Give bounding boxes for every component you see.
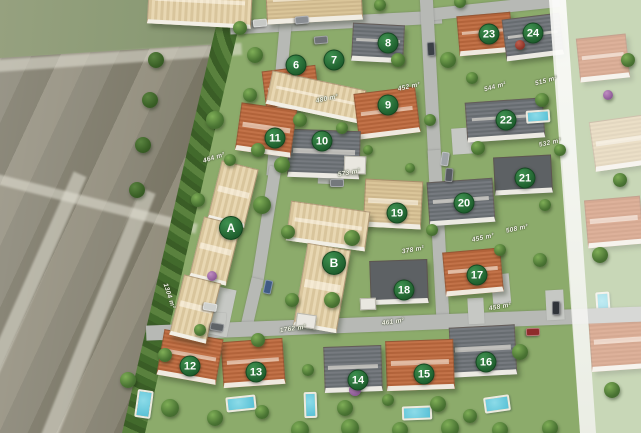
tree [251, 143, 265, 157]
tree [161, 399, 179, 417]
lot-marker[interactable]: 8 [378, 33, 399, 54]
tree [336, 122, 348, 134]
tree [281, 225, 295, 239]
car [444, 168, 453, 183]
lot-marker[interactable]: 21 [515, 168, 536, 189]
tree [592, 247, 608, 263]
lot-marker[interactable]: 6 [286, 55, 307, 76]
lot-area-label: 544 m² [483, 81, 506, 94]
pool-lot-12 [134, 389, 154, 419]
lot-area-label: 515 m² [534, 75, 557, 88]
tree [255, 405, 269, 419]
tree [374, 0, 386, 11]
lot-marker-label: 24 [527, 27, 539, 39]
tree [405, 163, 415, 173]
tree [512, 344, 528, 360]
lot-marker-label: 11 [269, 132, 281, 144]
tree [603, 90, 613, 100]
tree [539, 199, 551, 211]
tree [391, 53, 405, 67]
lot-marker-label: 14 [352, 374, 364, 386]
tree [302, 364, 314, 376]
tree [324, 292, 340, 308]
pool-lot-22 [526, 109, 551, 124]
tree [207, 271, 217, 281]
lot-area-label: 378 m² [401, 245, 424, 256]
lot-marker-label: 7 [331, 54, 337, 66]
lot-marker-label: 13 [250, 366, 262, 378]
car [253, 18, 268, 27]
tree [424, 114, 436, 126]
lot-marker[interactable]: 18 [394, 280, 415, 301]
tree [535, 93, 549, 107]
lot-marker-label: A [227, 221, 236, 235]
building-b-segment [286, 201, 371, 252]
lot-marker-label: 12 [184, 360, 196, 372]
tree [542, 420, 558, 433]
tree [224, 154, 236, 166]
tree [466, 72, 478, 84]
tree [129, 182, 145, 198]
site-plan: 464 m²480 m²452 m²544 m²515 m²573 m²532 … [0, 0, 641, 433]
tree [135, 137, 151, 153]
lot-marker-label: 21 [519, 172, 531, 184]
tree [206, 111, 224, 129]
tree [148, 52, 164, 68]
tree [243, 88, 257, 102]
tree [363, 145, 373, 155]
tree [440, 52, 456, 68]
lot-marker[interactable]: 16 [476, 352, 497, 373]
tree [293, 113, 307, 127]
car [526, 328, 540, 336]
lot-marker-label: 20 [458, 197, 470, 209]
tree [285, 293, 299, 307]
lot-area-label: 508 m² [505, 223, 528, 235]
tree [142, 92, 158, 108]
road-west-2 [251, 166, 282, 288]
car [427, 42, 436, 56]
lot-marker[interactable]: 24 [523, 23, 544, 44]
car [295, 15, 310, 24]
tree [337, 400, 353, 416]
tree [426, 224, 438, 236]
tree [621, 53, 635, 67]
tree [463, 409, 477, 423]
tree [253, 196, 271, 214]
tree [441, 419, 459, 433]
lot-marker-label: 22 [500, 114, 512, 126]
tree [207, 410, 223, 426]
road-center-1 [420, 0, 441, 158]
lot-marker-label: 8 [385, 37, 391, 49]
tree [382, 394, 394, 406]
lot-marker-label: B [330, 256, 339, 270]
tree [120, 372, 136, 388]
tree [430, 396, 446, 412]
garden-shed [360, 298, 376, 311]
lot-marker[interactable]: 22 [496, 110, 517, 131]
tree [392, 422, 408, 433]
house-lot-11 [235, 102, 297, 157]
tree [494, 244, 506, 256]
lot-marker[interactable]: 9 [378, 95, 399, 116]
car [440, 152, 450, 167]
lot-marker-label: 16 [480, 356, 492, 368]
lot-marker-label: 9 [385, 99, 391, 111]
driveway [467, 298, 484, 325]
lot-marker-label: 17 [471, 269, 483, 281]
lot-marker[interactable]: 15 [414, 364, 435, 385]
tree [533, 253, 547, 267]
pool-lot-13 [225, 394, 256, 412]
tree [492, 422, 508, 433]
pool-lot-15 [402, 405, 432, 420]
car [314, 35, 329, 44]
tree [233, 21, 247, 35]
tree [274, 157, 290, 173]
pool-lot-14 [304, 392, 318, 418]
lot-area-label: 455 m² [471, 232, 494, 244]
tree [515, 40, 525, 50]
lot-marker[interactable]: 10 [312, 131, 333, 152]
lot-marker[interactable]: 11 [265, 128, 286, 149]
pool-lot-16 [483, 394, 511, 413]
tree [247, 47, 263, 63]
tree [341, 419, 359, 433]
lot-marker-label: 15 [418, 368, 430, 380]
tree [158, 348, 172, 362]
lot-marker[interactable]: 14 [348, 370, 369, 391]
lot-marker-label: 18 [398, 284, 410, 296]
lot-marker-label: 19 [391, 207, 403, 219]
lot-marker[interactable]: 23 [479, 24, 500, 45]
tree [291, 421, 309, 433]
lot-marker-label: 10 [316, 135, 328, 147]
tree [191, 193, 205, 207]
lot-marker[interactable]: 20 [454, 193, 475, 214]
tree [604, 382, 620, 398]
car [330, 179, 344, 187]
tree [344, 230, 360, 246]
tree [251, 333, 265, 347]
lot-marker[interactable]: 12 [180, 356, 201, 377]
lot-marker[interactable]: A [219, 216, 243, 240]
lot-marker[interactable]: 17 [467, 265, 488, 286]
tree [554, 144, 566, 156]
lot-marker[interactable]: B [322, 251, 346, 275]
car [552, 301, 560, 315]
lot-marker[interactable]: 19 [387, 203, 408, 224]
lot-marker-label: 23 [483, 28, 495, 40]
tree [194, 324, 206, 336]
car [263, 279, 274, 294]
tree [613, 173, 627, 187]
lot-marker[interactable]: 7 [324, 50, 345, 71]
lot-marker-label: 6 [293, 59, 299, 71]
tree [471, 141, 485, 155]
lot-marker[interactable]: 13 [246, 362, 267, 383]
